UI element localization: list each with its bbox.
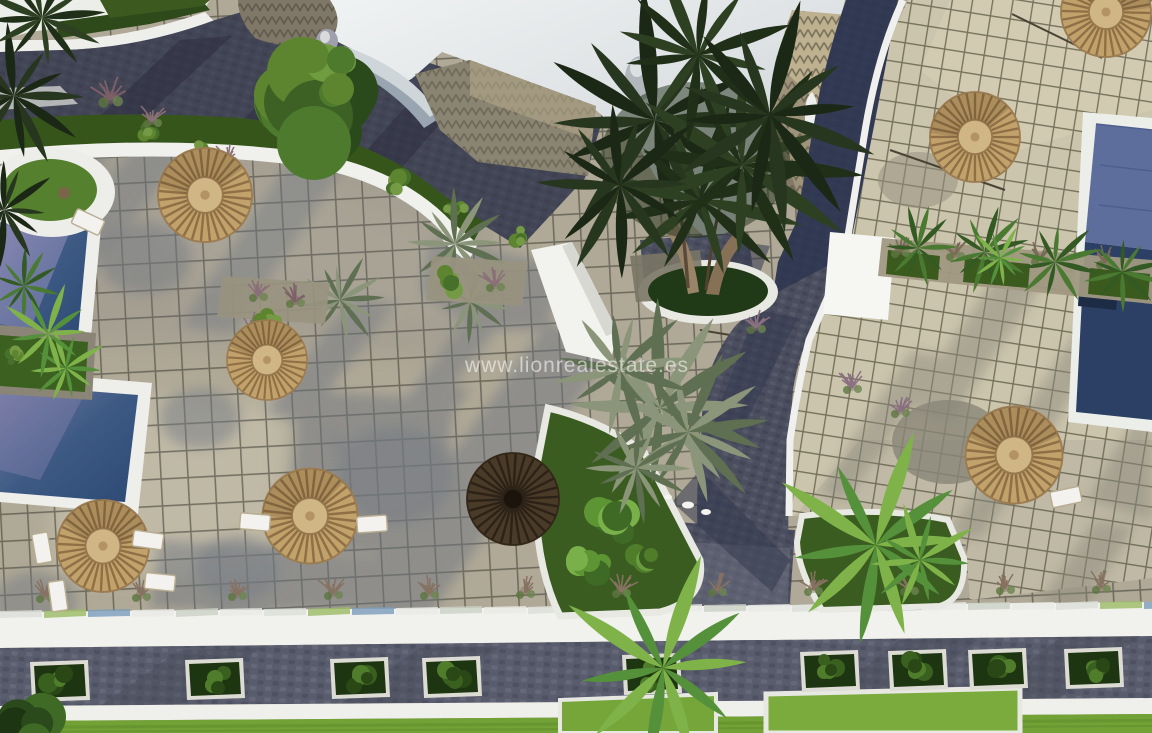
svg-text:www.lionrealestate.es: www.lionrealestate.es: [464, 354, 689, 377]
